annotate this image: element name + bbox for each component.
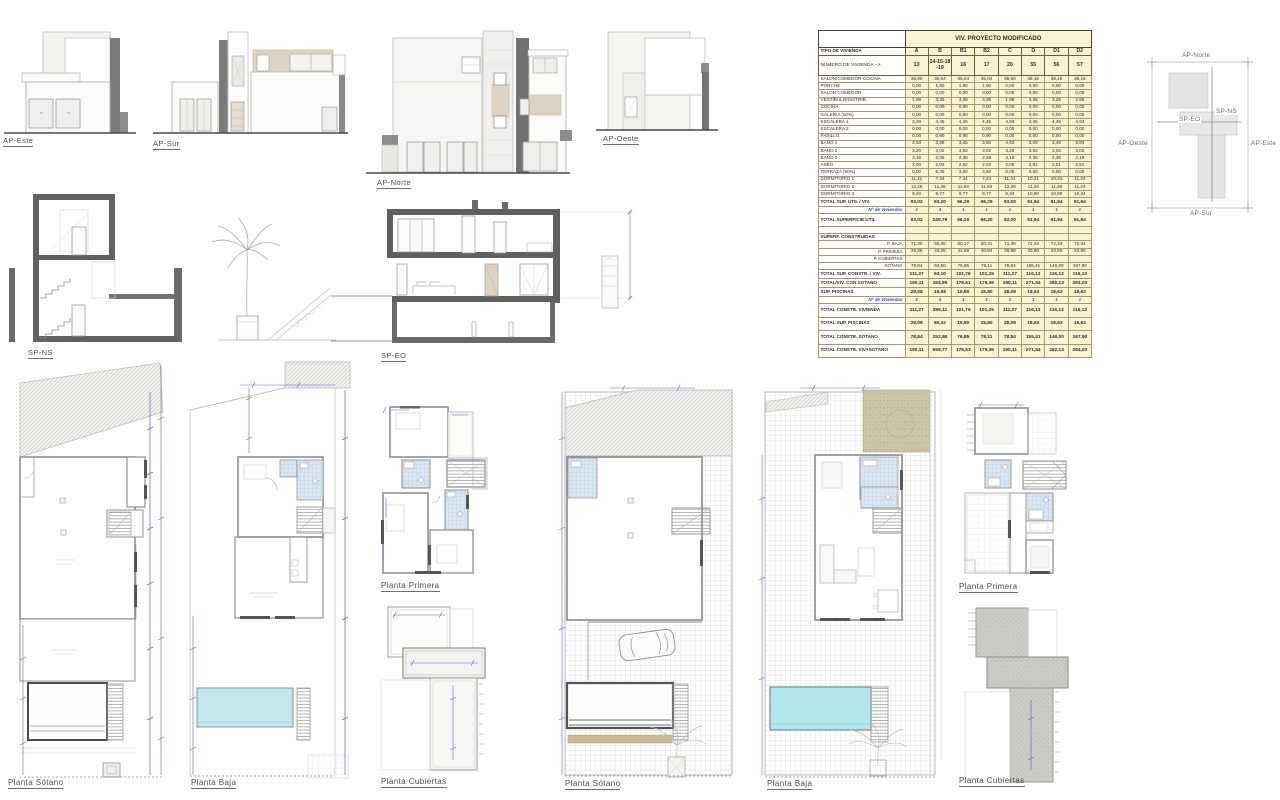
table-cell: 20 [998, 56, 1021, 76]
table-row: SOTANO78,8463,5076,8578,1178,84155,41146… [819, 263, 1092, 270]
elevation-label-ap-norte: AP-Norte [377, 178, 411, 189]
table-cell: 262,13 [1045, 279, 1068, 288]
table-cell: 1,99 [905, 97, 928, 104]
table-cell: 93,20 [928, 198, 951, 207]
table-cell: 11,38 [928, 183, 951, 190]
plan-label-cubiertas-1: Planta Cubiertas [381, 777, 447, 788]
table-cell: 43,80 [1022, 248, 1045, 255]
table-cell: 179,36 [975, 344, 998, 358]
plan-label-sotano-2: Planta Sótano [565, 779, 620, 790]
table-row: ESCALERA 13,294,454,454,454,934,454,454,… [819, 119, 1092, 126]
table-cell: 190,11 [998, 279, 1021, 288]
table-row-label: TOTAL SUP. PISCINAS [819, 317, 906, 331]
table-cell: 3,35 [928, 97, 951, 104]
table-cell: 2,00 [998, 162, 1021, 169]
table-cell: 178,63 [952, 344, 975, 358]
table-cell: 3,50 [975, 140, 998, 147]
table-row: TIPO DE VIVIENDAABB1B2CDD1D2 [819, 48, 1092, 56]
table-cell: 0,00 [1045, 111, 1068, 118]
table-row-label: PORCHE [819, 83, 906, 90]
table-cell: 0,00 [998, 169, 1021, 176]
table-cell: 396,11 [928, 304, 951, 318]
table-cell: 76,85 [952, 331, 975, 345]
table-row-label [819, 31, 906, 48]
table-cell: 3,02 [928, 147, 951, 154]
table-cell: 12,28 [905, 183, 928, 190]
table-row: P. CUBIERTAS [819, 255, 1092, 262]
table-cell: 9,34 [905, 191, 928, 198]
table-row: SUPERF. CONSTRUIDAS [819, 233, 1092, 241]
table-cell: 10,31 [1022, 176, 1045, 183]
table-cell: 56 [1045, 56, 1068, 76]
table-cell [998, 233, 1021, 241]
table-cell: 9,77 [928, 191, 951, 198]
table-cell: 101,25 [975, 304, 998, 318]
table-row: NUMERO DE VIVIENDA -->1314-15-18-1916172… [819, 56, 1092, 76]
table-cell: 93,00 [998, 213, 1021, 227]
table-cell: 10,31 [1045, 176, 1068, 183]
table-cell: 4,45 [1045, 119, 1068, 126]
table-cell [928, 233, 951, 241]
table-row-label: TOTAL SUPERFICIE UTIL [819, 213, 906, 227]
table-cell: 4 [928, 207, 951, 214]
elevation-ap-oeste-drawing [596, 32, 718, 130]
table-cell: 3,20 [905, 147, 928, 154]
table-cell: 66,29 [975, 198, 998, 207]
table-row: Nº de Viviendas14111111 [819, 207, 1092, 214]
table-cell: 71,39 [998, 241, 1021, 248]
architectural-sheet: AP-Este AP-Sur AP-Norte AP-Oeste SP-NS S… [0, 0, 1280, 800]
table-cell: 6,35 [928, 169, 951, 176]
table-cell: 39,88 [905, 248, 928, 255]
table-cell: C [998, 48, 1021, 56]
table-cell: 111,27 [998, 304, 1021, 318]
table-cell: 0,00 [998, 83, 1021, 90]
table-cell: 91,94 [1068, 213, 1091, 227]
table-row-label: P. PRIMERA [819, 248, 906, 255]
table-cell: 164,99 [928, 279, 951, 288]
table-cell: 155,41 [1022, 331, 1045, 345]
table-row-label: P. CUBIERTAS [819, 255, 906, 262]
table-cell: 0,00 [905, 104, 928, 111]
table-cell: 3,60 [952, 169, 975, 176]
table-cell [998, 255, 1021, 262]
table-cell: 1 [1045, 207, 1068, 214]
table-row-label: TIPO DE VIVIENDA [819, 48, 906, 56]
table-cell: 3,02 [952, 147, 975, 154]
table-cell: 78,84 [998, 331, 1021, 345]
table-cell: 12,28 [998, 183, 1021, 190]
table-cell: 1 [975, 297, 998, 304]
table-cell: 2,51 [1045, 162, 1068, 169]
table-cell: 18,63 [1068, 317, 1091, 331]
table-cell: 10,24 [1068, 191, 1091, 198]
table-cell: 0,90 [928, 133, 951, 140]
table-row: TOTAL/VIV. CON SOTANO190,11164,99178,611… [819, 279, 1092, 288]
table-cell: 66,20 [975, 213, 998, 227]
table-cell [952, 233, 975, 241]
plan-sotano-1-drawing [20, 363, 164, 777]
table-cell: 55 [1022, 56, 1045, 76]
table-row-label: TOTAL SUP. CONSTR. / VIV. [819, 270, 906, 279]
table-cell: 190,11 [998, 344, 1021, 358]
table-cell: 1 [905, 297, 928, 304]
table-cell: 0,00 [905, 111, 928, 118]
table-cell: 1,90 [928, 83, 951, 90]
table-cell: 78,11 [975, 331, 998, 345]
table-cell: 0,00 [928, 126, 951, 133]
table-cell: 0,00 [1045, 83, 1068, 90]
table-cell: 0,00 [1045, 169, 1068, 176]
table-cell: 0,00 [975, 104, 998, 111]
table-cell: 284,03 [1068, 344, 1091, 358]
table-row-label: SUPERF. CONSTRUIDAS [819, 233, 906, 241]
plan-baja-2-drawing [759, 385, 941, 777]
table-cell: 0,00 [998, 90, 1021, 97]
table-cell: A [905, 48, 928, 56]
table-row-label: DORMITORIO 1 [819, 176, 906, 183]
table-cell: VIV. PROYECTO MODIFICADO [905, 31, 1092, 48]
table-cell: 11,83 [975, 183, 998, 190]
site-key-label-sp-eo: SP-EO [1178, 116, 1201, 123]
table-cell: 0,00 [905, 83, 928, 90]
table-cell: 0,00 [1022, 126, 1045, 133]
table-cell: 93,02 [905, 198, 928, 207]
table-cell: 9,77 [952, 191, 975, 198]
table-row: SUP. PISCINAS28,0815,0815,8015,8028,0818… [819, 288, 1092, 297]
table-row: Nº de Viviendas14111111 [819, 297, 1092, 304]
table-cell: 0,00 [905, 133, 928, 140]
table-row-label: SALON/COMEDOR-COCINA [819, 76, 906, 83]
table-cell: 63,50 [928, 263, 951, 270]
table-cell: 0,00 [1068, 133, 1091, 140]
table-row-label: DORMITORIO 2 [819, 183, 906, 190]
elevation-label-ap-este: AP-Este [3, 136, 33, 147]
table-cell: 101,25 [975, 270, 998, 279]
table-cell: 60,41 [975, 241, 998, 248]
table-row: TOTAL CONSTR. SOTANO78,84252,9876,8578,1… [819, 331, 1092, 345]
table-cell: 1 [905, 207, 928, 214]
table-cell: 116,13 [1045, 304, 1068, 318]
table-cell: 655,77 [928, 344, 951, 358]
table-row-label: TOTAL CONSTR. VIV+SOTANO [819, 344, 906, 358]
table-cell [1045, 255, 1068, 262]
table-cell: 116,13 [1022, 304, 1045, 318]
table-cell: 252,98 [928, 331, 951, 345]
table-cell: 3,20 [998, 147, 1021, 154]
table-cell: 11,24 [1068, 183, 1091, 190]
table-row-label: SALON COMEDOR [819, 90, 906, 97]
table-row-label: ESCALERA 1 [819, 119, 906, 126]
table-row: ESCALERA 20,000,000,000,000,000,000,000,… [819, 126, 1092, 133]
table-cell: 11,41 [998, 176, 1021, 183]
table-cell: 3,02 [1022, 147, 1045, 154]
table-cell: 10,90 [1022, 191, 1045, 198]
table-row: VIV. PROYECTO MODIFICADO [819, 31, 1092, 48]
table-cell: 0,00 [1045, 104, 1068, 111]
table-cell: 3,18 [998, 155, 1021, 162]
table-cell: 3,60 [975, 169, 998, 176]
table-cell: 91,94 [1022, 213, 1045, 227]
table-cell: 15,80 [952, 317, 975, 331]
table-cell [975, 233, 998, 241]
table-cell: 1 [998, 297, 1021, 304]
table-cell: 91,94 [1045, 198, 1068, 207]
table-cell: 1,90 [975, 83, 998, 90]
table-cell: 0,00 [1045, 133, 1068, 140]
table-cell: 3,49 [1045, 140, 1068, 147]
table-row-label: P. BAJA [819, 241, 906, 248]
table-cell: 101,76 [952, 270, 975, 279]
plan-label-primera-2: Planta Primera [959, 582, 1018, 593]
table-cell: 11,24 [1068, 176, 1091, 183]
table-cell: 18,63 [1045, 288, 1068, 297]
table-cell: 15,80 [975, 317, 998, 331]
table-cell: 1,90 [952, 83, 975, 90]
table-cell: 101,76 [952, 304, 975, 318]
table-cell: 262,13 [1045, 344, 1068, 358]
table-cell: 271,54 [1022, 344, 1045, 358]
table-cell: 28,08 [998, 317, 1021, 331]
section-label-sp-eo: SP-EO [381, 351, 406, 362]
table-cell [1022, 255, 1045, 262]
table-cell: 28,08 [905, 317, 928, 331]
table-row: BAÑO 14,533,983,453,504,533,093,493,93 [819, 140, 1092, 147]
table-cell: 2,39 [952, 155, 975, 162]
table-cell: 179,36 [975, 279, 998, 288]
section-label-sp-ns: SP-NS [28, 348, 53, 359]
table-cell: 3,26 [1045, 97, 1068, 104]
elevation-label-ap-oeste: AP-Oeste [603, 134, 639, 145]
table-cell: 0,00 [1045, 126, 1068, 133]
plan-primera-1-drawing [381, 406, 487, 574]
plan-label-baja-2: Planta Baja [767, 779, 812, 790]
table-cell: 93,10 [928, 270, 951, 279]
table-cell: 43,80 [1045, 248, 1068, 255]
table-cell: 240,79 [928, 213, 951, 227]
table-cell: 91,94 [1068, 198, 1091, 207]
table-cell: 3,35 [975, 97, 998, 104]
table-row: TOTAL CONSTR. VIV+SOTANO190,11655,77178,… [819, 344, 1092, 358]
plan-label-sotano-1: Planta Sótano [8, 778, 63, 789]
table-row: GALERIA (50%)0,000,000,000,000,000,000,0… [819, 111, 1092, 118]
table-cell: 35,04 [928, 76, 951, 83]
table-cell: D2 [1068, 48, 1091, 56]
table-cell: 0,00 [998, 111, 1021, 118]
table-cell: 17 [975, 56, 998, 76]
table-cell: 43,80 [1068, 248, 1091, 255]
table-cell: 93,02 [905, 213, 928, 227]
table-cell: 35,04 [952, 76, 975, 83]
table-cell: 38,90 [998, 76, 1021, 83]
table-cell: 38,15 [1068, 76, 1091, 83]
table-row-label: SUP. PISCINAS [819, 288, 906, 297]
table-cell: 0,90 [975, 133, 998, 140]
table-cell: 72,34 [1068, 241, 1091, 248]
table-row: COCINA0,000,000,000,000,000,000,000,00 [819, 104, 1092, 111]
table-cell: 2,95 [1068, 97, 1091, 104]
table-row-label: TOTAL SUP. UTIL / VIV. [819, 198, 906, 207]
table-cell: 14-15-18-19 [928, 56, 951, 76]
table-cell: 18,63 [1045, 317, 1068, 331]
table-cell: 0,00 [1022, 169, 1045, 176]
table-cell: 190,11 [905, 344, 928, 358]
table-cell: 271,54 [1022, 279, 1045, 288]
table-cell: 0,00 [1022, 104, 1045, 111]
table-cell: 18,63 [1022, 317, 1045, 331]
table-cell: 2,02 [975, 162, 998, 169]
section-sp-ns-drawing [9, 194, 182, 342]
table-cell: B [928, 48, 951, 56]
table-cell [952, 255, 975, 262]
table-cell: 35,04 [975, 76, 998, 83]
table-cell [1045, 233, 1068, 241]
table-row-label: Nº de Viviendas [819, 207, 906, 214]
table-row: TOTAL CONSTR. VIVIENDA111,27396,11101,76… [819, 304, 1092, 318]
table-cell: 0,00 [1068, 104, 1091, 111]
table-cell: 0,00 [952, 126, 975, 133]
table-cell: 2,36 [1045, 155, 1068, 162]
table-cell: 0,00 [998, 104, 1021, 111]
table-cell: 4,93 [998, 119, 1021, 126]
plan-sotano-2-drawing [559, 385, 732, 777]
table-cell: 7,44 [928, 176, 951, 183]
table-cell: 0,00 [975, 126, 998, 133]
table-cell: 0,00 [1068, 169, 1091, 176]
table-row-label: BAÑO 3 [819, 155, 906, 162]
table-cell: 116,13 [1045, 270, 1068, 279]
table-cell: 11,39 [1045, 183, 1068, 190]
table-row-label: Nº de Viviendas [819, 297, 906, 304]
table-cell: 2,02 [952, 162, 975, 169]
table-cell: 0,00 [952, 90, 975, 97]
table-cell [905, 255, 928, 262]
table-cell [1022, 233, 1045, 241]
table-cell: 3,18 [905, 155, 928, 162]
table-cell: 1 [952, 207, 975, 214]
table-cell: 7,44 [952, 176, 975, 183]
table-cell: 0,00 [928, 111, 951, 118]
table-cell: 3,98 [928, 140, 951, 147]
elevation-label-ap-sur: AP-Sur [153, 139, 180, 150]
table-cell: 0,00 [1045, 90, 1068, 97]
table-cell: 0,00 [1022, 111, 1045, 118]
table-row: PASILLO0,000,900,900,900,000,000,000,00 [819, 133, 1092, 140]
table-cell: 18,63 [1022, 288, 1045, 297]
plan-cubiertas-1-drawing [381, 607, 485, 770]
table-cell: 190,11 [905, 279, 928, 288]
table-cell: 167,90 [1068, 331, 1091, 345]
table-cell: 7,44 [975, 176, 998, 183]
table-cell: 0,00 [905, 90, 928, 97]
table-row: ASEO2,002,022,022,022,002,512,512,51 [819, 162, 1092, 169]
table-row: BAÑO 33,182,392,392,393,182,362,362,19 [819, 155, 1092, 162]
table-cell: 38,15 [1045, 76, 1068, 83]
table-cell: 15,80 [975, 288, 998, 297]
table-cell: 116,13 [1068, 270, 1091, 279]
table-cell: 1,99 [998, 97, 1021, 104]
table-cell: 16 [952, 56, 975, 76]
table-cell: 0,00 [952, 104, 975, 111]
table-cell: 13 [905, 56, 928, 76]
table-row: TOTAL SUP. PISCINAS28,0860,3215,8015,802… [819, 317, 1092, 331]
table-cell: 9,34 [998, 191, 1021, 198]
table-cell: 78,84 [905, 263, 928, 270]
table-cell: 284,03 [1068, 279, 1091, 288]
table-cell: 66,20 [952, 213, 975, 227]
table-cell: 0,00 [1068, 83, 1091, 90]
table-cell: 91,94 [1022, 198, 1045, 207]
table-cell: 2,39 [975, 155, 998, 162]
table-cell: 15,80 [952, 288, 975, 297]
site-key-label-sp-ns: SP-NS [1215, 108, 1238, 115]
table-cell: 9,77 [975, 191, 998, 198]
table-cell: 0,00 [928, 104, 951, 111]
table-cell: 116,13 [1022, 270, 1045, 279]
table-row-label: BAÑO 1 [819, 140, 906, 147]
table-cell: 2,51 [1068, 162, 1091, 169]
site-key-label-north: AP-Norte [1182, 52, 1210, 59]
table-row: DORMITORIO 212,2811,3811,8311,8312,2811,… [819, 183, 1092, 190]
table-row: TERRAZA (50%)0,006,353,603,600,000,000,0… [819, 169, 1092, 176]
table-cell: 1 [1045, 297, 1068, 304]
table-row-label: TOTAL/VIV. CON SOTANO [819, 279, 906, 288]
table-cell: D1 [1045, 48, 1068, 56]
table-cell: 0,00 [975, 90, 998, 97]
table-cell: 155,41 [1022, 263, 1045, 270]
table-cell: 3,02 [975, 147, 998, 154]
table-cell: 2,00 [905, 162, 928, 169]
elevation-ap-este-drawing [4, 32, 136, 133]
table-cell: 78,84 [905, 331, 928, 345]
table-row: SALON COMEDOR0,000,000,000,000,000,000,0… [819, 90, 1092, 97]
table-cell: 0,00 [928, 90, 951, 97]
table-row: DORMITORIO 39,349,779,779,779,3410,9010,… [819, 191, 1092, 198]
table-cell: 43,25 [928, 248, 951, 255]
table-cell: 55,08 [928, 241, 951, 248]
table-cell [1068, 233, 1091, 241]
table-cell: 0,00 [1022, 90, 1045, 97]
table-cell: 111,27 [998, 270, 1021, 279]
table-cell: 28,08 [998, 288, 1021, 297]
table-row: PORCHE0,001,901,901,900,000,000,000,00 [819, 83, 1092, 90]
table-cell: 4,45 [952, 119, 975, 126]
table-cell: 1 [1068, 207, 1091, 214]
table-cell: 4,45 [975, 119, 998, 126]
area-table: VIV. PROYECTO MODIFICADOTIPO DE VIVIENDA… [818, 30, 1092, 358]
table-row: VESTIBULO/DISTRIB.1,993,353,353,351,993,… [819, 97, 1092, 104]
table-cell: 0,00 [998, 126, 1021, 133]
table-row-label: COCINA [819, 104, 906, 111]
table-cell: 2,36 [1022, 155, 1045, 162]
table-cell: 0,00 [952, 111, 975, 118]
table-cell: 178,61 [952, 279, 975, 288]
plan-baja-1-drawing [190, 362, 350, 778]
table-cell: D [1022, 48, 1045, 56]
plan-label-cubiertas-2: Planta Cubiertas [959, 776, 1025, 787]
table-cell: 38,15 [1022, 76, 1045, 83]
table-cell [928, 255, 951, 262]
table-cell: 0,00 [1022, 133, 1045, 140]
table-cell: 3,45 [952, 140, 975, 147]
table-cell: 2,39 [928, 155, 951, 162]
table-cell: 41,59 [952, 248, 975, 255]
table-cell: 3,29 [905, 119, 928, 126]
table-row: P. BAJA71,3955,0860,1760,4171,3972,3472,… [819, 241, 1092, 248]
table-cell: 72,34 [1045, 241, 1068, 248]
table-cell: 3,02 [1068, 147, 1091, 154]
table-row: BAÑO 23,203,023,023,023,203,023,023,02 [819, 147, 1092, 154]
